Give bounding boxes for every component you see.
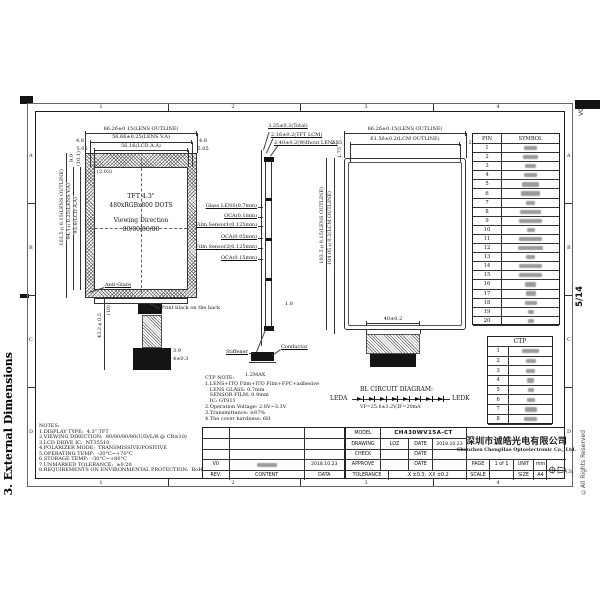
pin-symbol-redacted: [501, 244, 559, 252]
pin-number: 6: [473, 189, 501, 197]
check-label: CHECK: [346, 450, 380, 459]
pin-row: 5: [473, 180, 559, 189]
led-diode-icon: [355, 396, 367, 403]
zone-tick: [565, 387, 572, 388]
ext-line: [350, 144, 351, 162]
led-diode-icon: [401, 396, 413, 403]
revision-rev: V0: [203, 460, 229, 469]
pin-row: 9: [473, 217, 559, 226]
edge-page-number: 5/14: [575, 286, 585, 307]
page-label: PAGE: [467, 460, 489, 469]
zone-tick: [28, 203, 35, 204]
pin-row: 3: [473, 162, 559, 171]
zone-col-1: 1: [99, 104, 102, 110]
pin-row: 7: [473, 199, 559, 208]
pin-symbol-redacted: [501, 317, 559, 325]
pin-row: 16: [473, 280, 559, 289]
scale-label: SCALE: [467, 471, 489, 480]
ext-line: [90, 142, 91, 167]
title-block: MODEL CH430WV15A-CT DRAWING LOZ DATE 201…: [345, 427, 565, 479]
drawing-value: LOZ: [380, 439, 408, 448]
pin-symbol-redacted: [501, 226, 559, 234]
dim-fpc-small: 3.9: [173, 349, 181, 355]
layer-oca2: OCA(0.05mm): [177, 235, 257, 241]
section-title: 3. External Dimensions: [2, 352, 15, 496]
pin-number: 5: [473, 180, 501, 188]
ctp-pin-number: 3: [488, 366, 508, 375]
datasheet-page: 3. External Dimensions V0 5/14 ©All Righ…: [0, 0, 600, 600]
drawing-label: DRAWING: [346, 439, 380, 448]
pin-number: 3: [473, 162, 501, 170]
edge-copyright: ©All Rights Reserved: [580, 430, 587, 495]
pin-symbol-redacted: [501, 290, 559, 298]
dim-lens-outline-h: 103.5±0.15(LENS OUTLINE): [60, 168, 66, 247]
ctp-rows: 1 2 3 4 5: [488, 347, 552, 425]
pin-number: 10: [473, 226, 501, 234]
company-name-cn: 深圳市诚皓光电有限公司: [466, 434, 567, 447]
led-diode-icon: [378, 396, 390, 403]
pin-row: 8: [473, 208, 559, 217]
pin-row: 12: [473, 244, 559, 253]
ctp-row: 4: [488, 376, 552, 386]
led-diode-icon: [390, 396, 402, 403]
zone-tick: [433, 479, 434, 486]
revision-date: 2018.10.23: [304, 460, 344, 469]
fpc-tail: [142, 315, 162, 348]
zone-tick: [168, 479, 169, 486]
pin-symbol-redacted: [501, 189, 559, 197]
pin-symbol-redacted: [501, 308, 559, 316]
back-view-inner: [348, 162, 462, 326]
dim-line: [80, 167, 81, 290]
bl-circuit-title: BL CIRCUIT DIAGRAM:: [360, 387, 433, 394]
ext-line: [420, 330, 421, 334]
scale-value: [489, 471, 513, 480]
date-label: DATE: [408, 439, 432, 448]
check-value: [380, 450, 408, 459]
pin-number: 19: [473, 308, 501, 316]
viewing-direction-label: Viewing Direction: [114, 218, 169, 225]
revision-content-header: CONTENT: [229, 471, 304, 480]
model-label: MODEL: [346, 428, 380, 438]
stiffener-label: Stiffener: [190, 350, 248, 356]
ext-line: [192, 142, 193, 167]
pin-row: 15: [473, 271, 559, 280]
zone-row-a2: A: [567, 153, 571, 159]
dim-line: [366, 323, 420, 324]
pin-number: 13: [473, 253, 501, 261]
dim-line: [350, 144, 460, 145]
layer-oca3: OCA(0.15mm): [177, 256, 257, 262]
zone-tick: [28, 387, 35, 388]
zone-tick: [565, 203, 572, 204]
pin-symbol-redacted: [501, 153, 559, 161]
dim-line: [344, 133, 466, 134]
dim-back-lens-outline-w: 66.26±0.15(LENS OUTLINE): [368, 127, 443, 133]
approve-value: [380, 460, 408, 469]
symbol-col-header: SYMBOL: [501, 134, 559, 143]
pin-row: 11: [473, 235, 559, 244]
ext-line: [94, 150, 95, 167]
dim-top-small: (10.1): [77, 150, 83, 167]
company-box: 深圳市诚皓光电有限公司 Shenzhen ChengHao Optoelectr…: [466, 428, 566, 459]
viewing-angles-label: 80/80/80/80: [123, 227, 160, 234]
ext-line: [366, 330, 367, 334]
ctp-row: 6: [488, 395, 552, 405]
ext-line: [197, 133, 198, 153]
dim-line: [94, 150, 188, 151]
zone-col-2b: 2: [231, 480, 234, 486]
zone-col-4b: 4: [496, 480, 499, 486]
dim-fpc-small: (10): [107, 304, 113, 316]
ctp-symbol-redacted: [508, 376, 552, 385]
led-diode-icon: [413, 396, 425, 403]
led-diode-icon: [436, 396, 448, 403]
leader-line: [258, 226, 263, 227]
pin-row: 6: [473, 189, 559, 198]
layer-film-sensor2: Film Sensor2(0.125mm): [177, 245, 257, 251]
pin-symbol-redacted: [501, 180, 559, 188]
revision-rev-header: REV.: [203, 471, 229, 480]
leader-line: [258, 217, 263, 218]
bl-cathode-label: LEDK: [452, 396, 470, 403]
size-label: SIZE: [513, 471, 533, 480]
ctp-symbol-redacted: [508, 366, 552, 375]
pin-symbol-redacted: [501, 262, 559, 270]
pin-number: 14: [473, 262, 501, 270]
ctp-pin-number: 1: [488, 347, 508, 356]
stiffener-plate: [249, 362, 276, 363]
zone-row-c2: C: [567, 337, 571, 343]
layer-glass-lens: Glass LENS(0.7mm): [177, 204, 257, 210]
dim-lens-outline-w: 66.26±0.15(LENS OUTLINE): [104, 127, 179, 133]
panel-resolution-label: 480xRGBx800 DOTS: [109, 203, 172, 210]
stack-tape-top: [264, 157, 274, 162]
back-fpc: [366, 334, 420, 354]
third-angle-projection-icon: [548, 464, 566, 476]
ctp-pin-number: 8: [488, 415, 508, 424]
ctp-note: CTP NOTE: 1.LENS+ITO Film+ITO Film+FPC+a…: [205, 376, 335, 422]
anti-glare-label: Anti-Glare: [105, 283, 131, 289]
conductor-label: Conductor: [281, 345, 308, 351]
dim-side: 5.05: [198, 147, 209, 153]
pin-col-header: PIN: [473, 134, 501, 143]
dim-back-lcm-outline-w: 61.56±0.2(LCM OUTLINE): [370, 137, 439, 143]
ctp-symbol-redacted: [508, 405, 552, 414]
pin-number: 15: [473, 271, 501, 279]
zone-col-1b: 1: [99, 480, 102, 486]
pin-row: 10: [473, 226, 559, 235]
driver-ic: [138, 304, 162, 314]
zone-row-c: C: [29, 337, 33, 343]
corner-dim: (2.03): [97, 170, 112, 176]
pin-number: 17: [473, 290, 501, 298]
pin-number: 18: [473, 299, 501, 307]
leader-line: [249, 353, 253, 354]
pin-row: 14: [473, 262, 559, 271]
tolerance-label: TOLERANCE: [346, 471, 388, 480]
pin-row: 13: [473, 253, 559, 262]
pin-row: 20: [473, 317, 559, 326]
pin-number: 7: [473, 199, 501, 207]
zone-tick: [565, 295, 572, 296]
ctp-pin-number: 6: [488, 395, 508, 404]
pin-symbol-redacted: [501, 253, 559, 261]
dim-lcd-aa-h: 93.6(LCD A.A): [74, 196, 80, 235]
dim-lcm-thickness: 2.16±0.2(TFT LCM): [271, 133, 322, 139]
ctp-symbol-redacted: [508, 347, 552, 356]
pin-row: 1: [473, 144, 559, 153]
pin-symbol-redacted: [501, 217, 559, 225]
ctp-symbol-redacted: [508, 386, 552, 395]
dim-back-lens-outline-h: 103.5±0.15(LENS OUTLINE): [320, 186, 326, 265]
approve-date: [432, 460, 466, 469]
ctp-note-line: 4.The cover hardness: 6H: [205, 417, 335, 423]
pin-symbol-redacted: [501, 171, 559, 179]
dim-without-lens: 2.40±0.2(Without LENS): [274, 141, 338, 147]
pin-row: 17: [473, 290, 559, 299]
ctp-row: 7: [488, 405, 552, 415]
ctp-symbol-redacted: [508, 395, 552, 404]
dim-lcd-aa-w: 56.16(LCD A.A): [121, 144, 161, 150]
notes-block: NOTES: 1.DISPLAY TYPE: 4.3" TFT 2.VIEWIN…: [39, 424, 204, 474]
ctp-table: CTP 1 2 3 4: [487, 336, 553, 424]
ctp-pin-number: 5: [488, 386, 508, 395]
stack-mark: [266, 278, 272, 281]
revision-content-redacted: [229, 460, 304, 469]
tolerance-value: .X ±0.3, .XX ±0.2: [388, 471, 466, 480]
leader-line: [258, 248, 263, 249]
pin-symbol-redacted: [501, 199, 559, 207]
revision-table: V0 2018.10.23 REV. CONTENT DATA: [202, 427, 345, 479]
pin-number: 2: [473, 153, 501, 161]
size-value: A4: [533, 471, 547, 480]
led-diode-icon: [367, 396, 379, 403]
pin-symbol-redacted: [501, 299, 559, 307]
approve-label: APPROVE: [346, 460, 380, 469]
pin-row: 18: [473, 299, 559, 308]
dim-back-fpc-w: 40±0.2: [384, 317, 403, 323]
zone-row-b: B: [29, 245, 33, 251]
dim-side: 4.8: [199, 139, 207, 145]
zone-tick: [168, 104, 169, 111]
ext-line: [85, 133, 86, 153]
dim-line: [334, 158, 335, 334]
unit-value: mm: [533, 460, 547, 469]
leader-line: [258, 238, 263, 239]
layer-oca1: OCA(0.1mm): [177, 214, 257, 220]
zone-tick: [300, 104, 301, 111]
revision-data-header: DATA: [304, 471, 344, 480]
fpc-connector: [133, 348, 171, 370]
dim-fpc-small: 4±0.3: [173, 357, 188, 363]
led-string: [355, 396, 449, 403]
pin-symbol-redacted: [501, 280, 559, 288]
ext-line: [460, 144, 461, 162]
stack-lcm-bar: [265, 158, 272, 330]
pin-symbol-redacted: [501, 144, 559, 152]
ext-line: [188, 150, 189, 167]
zone-row-a: A: [29, 153, 33, 159]
dim-fpc-height: 43.2±0.5: [98, 312, 104, 339]
back-fpc-connector: [370, 354, 416, 367]
ctp-symbol-redacted: [508, 415, 552, 424]
date-label: DATE: [408, 450, 432, 459]
panel-type-label: TFT 4.3": [127, 193, 154, 200]
led-diode-icon: [424, 396, 436, 403]
date-label: DATE: [408, 460, 432, 469]
zone-row-d2: D: [567, 429, 571, 435]
print-black-note: Print black on the back: [161, 306, 220, 312]
leader-line: [258, 259, 263, 260]
pin-symbol-redacted: [501, 208, 559, 216]
company-name-en: Shenzhen ChengHao Optoelectronic Co., Lt…: [457, 448, 576, 453]
pin-number: 8: [473, 208, 501, 216]
note-line: 8.REQUIREMENTS ON ENVIRONMENTAL PROTECTI…: [39, 468, 204, 474]
ext-line: [466, 133, 467, 158]
pin-rows: 1 2 3 4 5: [473, 144, 559, 326]
zone-col-4: 4: [496, 104, 499, 110]
dim-side: 4.8: [76, 139, 84, 145]
pin-number: 20: [473, 317, 501, 325]
pin-row: 2: [473, 153, 559, 162]
pin-number: 11: [473, 235, 501, 243]
zone-col-2: 2: [231, 104, 234, 110]
zone-row-d: D: [29, 429, 33, 435]
pin-number: 4: [473, 171, 501, 179]
ctp-pin-number: 4: [488, 376, 508, 385]
dim-back-lcm-outline-h: 104.05±0.2(LCM OUTLINE): [328, 190, 334, 266]
bl-spec: VF=25.6±3.2V,IF=20mA: [360, 405, 421, 411]
pin-number: 1: [473, 144, 501, 152]
layer-film-sensor1: Film Sensor1(0.125mm): [177, 223, 257, 229]
zone-tick: [28, 295, 35, 296]
pin-symbol-redacted: [501, 162, 559, 170]
pin-number: 16: [473, 280, 501, 288]
zone-tick: [300, 479, 301, 486]
ctp-row: 2: [488, 357, 552, 367]
ext-line: [344, 133, 345, 158]
ctp-symbol-redacted: [508, 357, 552, 366]
pin-symbol-redacted: [501, 271, 559, 279]
ctp-table-title: CTP: [488, 337, 552, 346]
leader-line: [258, 207, 263, 208]
pin-symbol-redacted: [501, 235, 559, 243]
dim-total-thickness: 3.35±0.2(Total): [268, 124, 308, 130]
edge-version: V0: [578, 108, 585, 116]
dim-top-small: 1.75: [338, 146, 344, 159]
pin-row: 4: [473, 171, 559, 180]
stack-mark: [266, 198, 272, 201]
ctp-row: 3: [488, 366, 552, 376]
ctp-row: 5: [488, 386, 552, 396]
zone-row-b2: B: [567, 245, 571, 251]
ctp-pin-number: 2: [488, 357, 508, 366]
ctp-row: 8: [488, 415, 552, 425]
pin-number: 9: [473, 217, 501, 225]
dim-small: 1.8: [285, 302, 293, 308]
pin-number: 12: [473, 244, 501, 252]
zone-col-3b: 3: [364, 480, 367, 486]
projection-note: (3): [566, 470, 573, 476]
stack-connector: [251, 352, 274, 361]
ctp-row: 1: [488, 347, 552, 357]
projection-symbol-cell: [546, 459, 566, 480]
zone-col-3: 3: [364, 104, 367, 110]
page-value: 1 of 1: [489, 460, 513, 469]
ctp-pin-number: 7: [488, 405, 508, 414]
pin-symbol-table: PIN SYMBOL 1 2 3: [472, 133, 560, 325]
unit-label: UNIT: [513, 460, 533, 469]
zone-tick: [433, 104, 434, 111]
pin-row: 19: [473, 308, 559, 317]
dim-lens-va-w: 56.66±0.25(LENS V.A): [112, 135, 170, 141]
stack-mark: [266, 238, 272, 241]
model-value: CH430WV15A-CT: [380, 428, 466, 438]
dim-lens-va-h: 94.1±0.25(LENS V.A): [67, 182, 73, 240]
